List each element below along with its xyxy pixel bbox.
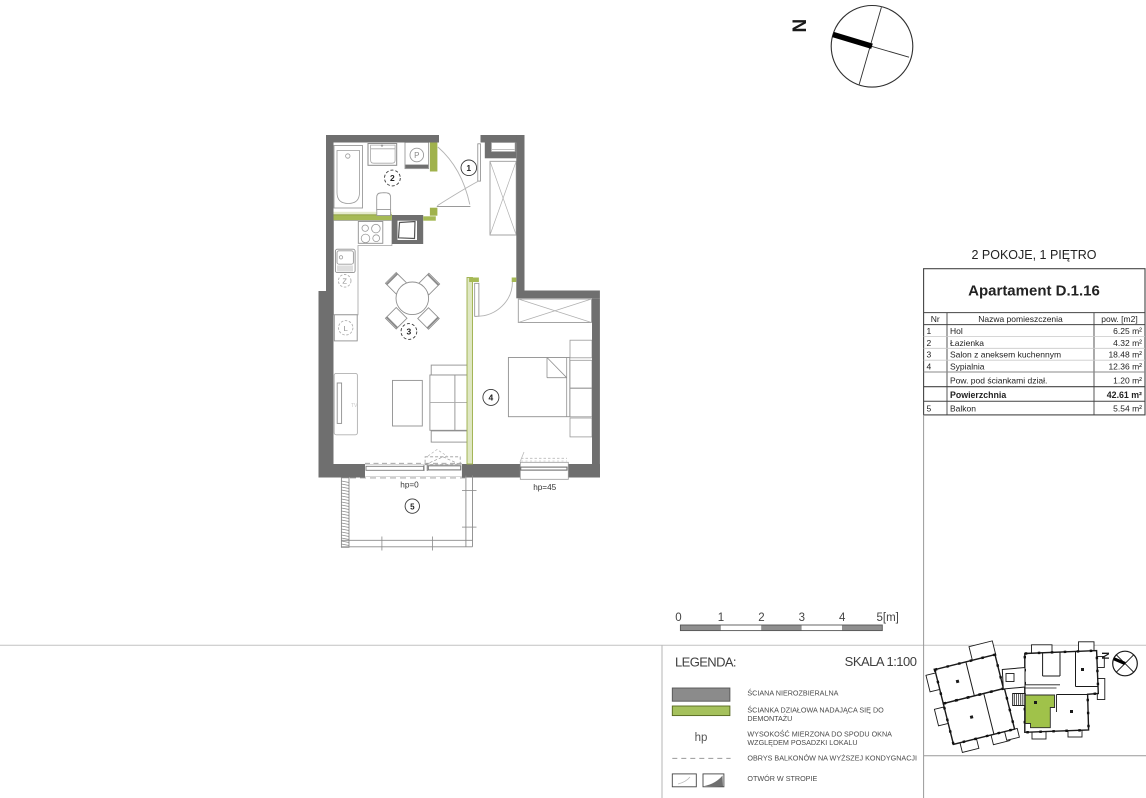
svg-text:hp=0: hp=0	[400, 481, 419, 490]
svg-text:2: 2	[927, 338, 932, 348]
svg-text:P: P	[414, 151, 419, 160]
svg-text:Powierzchnia: Powierzchnia	[950, 390, 1006, 400]
svg-text:4: 4	[839, 612, 846, 624]
svg-text:TV: TV	[351, 403, 358, 409]
svg-text:42.61 m²: 42.61 m²	[1107, 390, 1142, 400]
svg-text:Balkon: Balkon	[950, 404, 976, 414]
svg-text:3: 3	[799, 612, 805, 624]
svg-text:5.54 m²: 5.54 m²	[1113, 404, 1142, 414]
svg-text:LEGENDA:: LEGENDA:	[675, 655, 736, 670]
svg-text:WZGLĘDEM POSADZKI LOKALU: WZGLĘDEM POSADZKI LOKALU	[747, 738, 857, 747]
svg-text:4: 4	[489, 393, 494, 403]
svg-text:2: 2	[390, 173, 395, 183]
svg-text:4: 4	[927, 361, 932, 371]
svg-text:18.48 m²: 18.48 m²	[1108, 350, 1142, 360]
svg-text:5: 5	[410, 502, 415, 511]
svg-text:N: N	[790, 19, 811, 33]
svg-text:0: 0	[675, 612, 681, 624]
svg-text:Apartament D.1.16: Apartament D.1.16	[968, 283, 1100, 300]
svg-text:1.20 m²: 1.20 m²	[1113, 376, 1142, 386]
svg-text:N: N	[1100, 652, 1112, 660]
svg-text:Z: Z	[342, 277, 347, 286]
svg-text:Salon z aneksem kuchennym: Salon z aneksem kuchennym	[950, 350, 1061, 360]
svg-text:3: 3	[407, 327, 412, 337]
svg-text:5[m]: 5[m]	[877, 612, 899, 624]
svg-text:DEMONTAŻU: DEMONTAŻU	[747, 714, 792, 723]
svg-text:Hol: Hol	[950, 326, 963, 336]
svg-text:1: 1	[927, 326, 932, 336]
svg-text:12.36 m²: 12.36 m²	[1108, 361, 1142, 371]
svg-text:5: 5	[927, 404, 932, 414]
svg-text:Sypialnia: Sypialnia	[950, 361, 985, 371]
svg-text:3: 3	[927, 350, 932, 360]
svg-text:1: 1	[718, 612, 724, 624]
svg-text:ŚCIANA NIEROZBIERALNA: ŚCIANA NIEROZBIERALNA	[747, 689, 838, 698]
svg-text:Pow. pod ściankami dział.: Pow. pod ściankami dział.	[950, 376, 1047, 386]
svg-text:6.25 m²: 6.25 m²	[1113, 326, 1142, 336]
svg-text:OTWÓR W STROPIE: OTWÓR W STROPIE	[747, 774, 817, 783]
svg-text:hp: hp	[695, 732, 708, 744]
svg-text:2: 2	[758, 612, 764, 624]
svg-text:2 POKOJE, 1 PIĘTRO: 2 POKOJE, 1 PIĘTRO	[971, 248, 1096, 262]
svg-text:SKALA 1:100: SKALA 1:100	[845, 654, 917, 669]
svg-text:Nr: Nr	[931, 314, 940, 324]
svg-text:Nazwa pomieszczenia: Nazwa pomieszczenia	[978, 314, 1063, 324]
svg-text:OBRYS BALKONÓW NA WYŻSZEJ KOND: OBRYS BALKONÓW NA WYŻSZEJ KONDYGNACJI	[747, 754, 917, 763]
svg-text:pow. [m2]: pow. [m2]	[1101, 314, 1137, 324]
svg-text:L: L	[344, 324, 348, 333]
svg-text:Łazienka: Łazienka	[950, 338, 984, 348]
svg-text:hp=45: hp=45	[533, 483, 556, 492]
svg-text:4.32 m²: 4.32 m²	[1113, 338, 1142, 348]
svg-text:1: 1	[466, 163, 471, 173]
